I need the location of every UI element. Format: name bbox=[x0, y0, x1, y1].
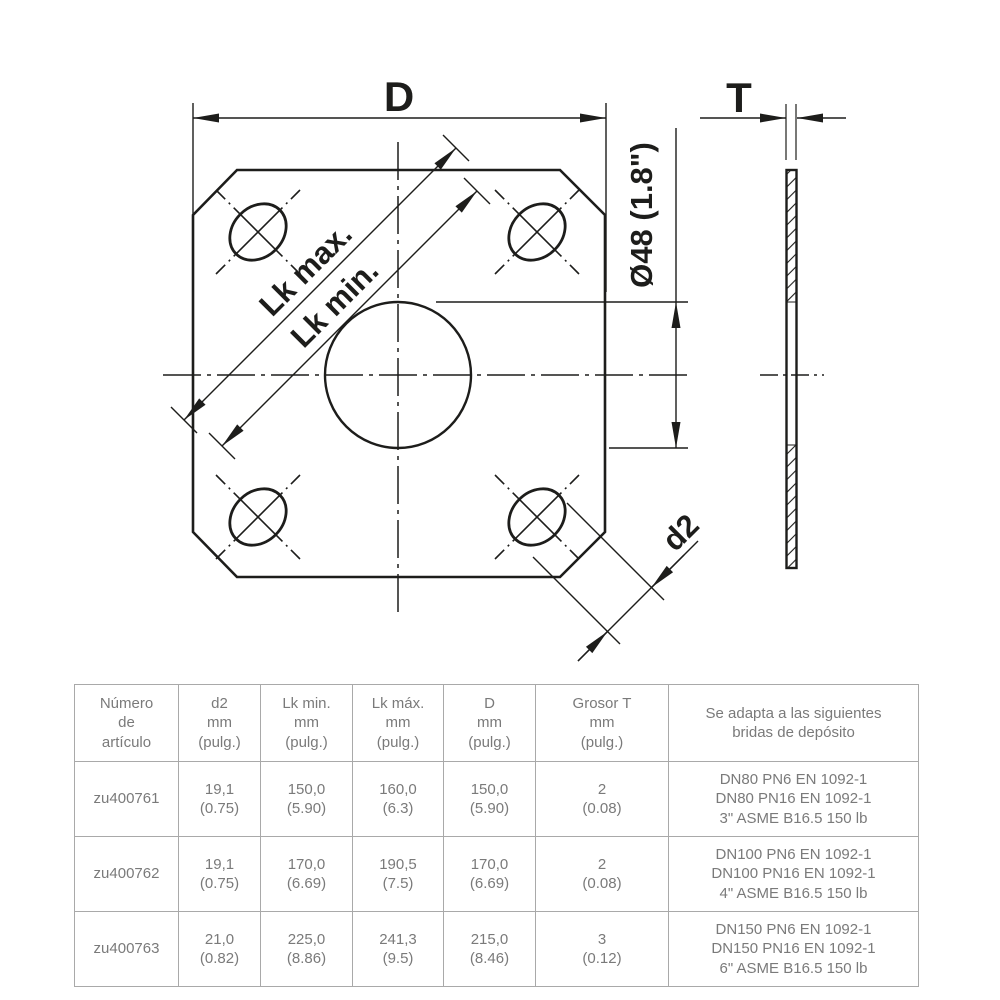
header-D: D mm (pulg.) bbox=[444, 685, 536, 762]
matching-flanges-cell: DN100 PN6 EN 1092-1 DN100 PN16 EN 1092-1… bbox=[669, 837, 919, 912]
table-row: zu400762 19,1 (0.75) 170,0 (6.69) 190,5 … bbox=[75, 837, 919, 912]
lk-max-cell: 160,0 (6.3) bbox=[353, 762, 444, 837]
label-T: T bbox=[726, 74, 752, 121]
table-row: zu400763 21,0 (0.82) 225,0 (8.86) 241,3 … bbox=[75, 912, 919, 987]
d2-cell: 19,1 (0.75) bbox=[179, 762, 261, 837]
dimension-Lk-max bbox=[171, 135, 469, 433]
label-D: D bbox=[384, 73, 414, 120]
plate-outline bbox=[193, 170, 605, 577]
label-d2: d2 bbox=[655, 507, 705, 557]
header-matching-flanges: Se adapta a las siguientes bridas de dep… bbox=[669, 685, 919, 762]
section-hatch-bottom bbox=[787, 445, 796, 567]
bolt-hole-bottom-left bbox=[216, 475, 300, 559]
header-lk-min: Lk min. mm (pulg.) bbox=[261, 685, 353, 762]
arrow-segment bbox=[578, 632, 608, 662]
D-cell: 150,0 (5.90) bbox=[444, 762, 536, 837]
thickness-cell: 2 (0.08) bbox=[536, 762, 669, 837]
header-d2: d2 mm (pulg.) bbox=[179, 685, 261, 762]
dimension-Lk-min bbox=[209, 178, 490, 459]
header-article-number: Número de artículo bbox=[75, 685, 179, 762]
d2-cell: 19,1 (0.75) bbox=[179, 837, 261, 912]
table-row: zu400761 19,1 (0.75) 150,0 (5.90) 160,0 … bbox=[75, 762, 919, 837]
plan-view bbox=[163, 103, 698, 661]
d2-cell: 21,0 (0.82) bbox=[179, 912, 261, 987]
technical-drawing: D T Lk max. Lk min. Ø48 (1.8") d2 bbox=[0, 0, 1000, 680]
table-header-row: Número de artículo d2 mm (pulg.) Lk min.… bbox=[75, 685, 919, 762]
dimension-D bbox=[193, 103, 606, 292]
dimension-T bbox=[700, 104, 846, 160]
specification-table: Número de artículo d2 mm (pulg.) Lk min.… bbox=[74, 684, 919, 987]
lk-max-cell: 241,3 (9.5) bbox=[353, 912, 444, 987]
dimension-line bbox=[184, 148, 456, 420]
lk-min-cell: 225,0 (8.86) bbox=[261, 912, 353, 987]
thickness-cell: 2 (0.08) bbox=[536, 837, 669, 912]
article-number-cell: zu400762 bbox=[75, 837, 179, 912]
bolt-hole-top-right bbox=[495, 190, 579, 274]
D-cell: 170,0 (6.69) bbox=[444, 837, 536, 912]
D-cell: 215,0 (8.46) bbox=[444, 912, 536, 987]
side-view bbox=[700, 104, 846, 568]
header-lk-max: Lk máx. mm (pulg.) bbox=[353, 685, 444, 762]
lk-min-cell: 150,0 (5.90) bbox=[261, 762, 353, 837]
lk-min-cell: 170,0 (6.69) bbox=[261, 837, 353, 912]
bolt-hole-top-left bbox=[216, 190, 300, 274]
thickness-cell: 3 (0.12) bbox=[536, 912, 669, 987]
tangent-extension-line bbox=[533, 557, 620, 644]
table-header: Número de artículo d2 mm (pulg.) Lk min.… bbox=[75, 685, 919, 762]
label-center-hole-diameter: Ø48 (1.8") bbox=[624, 142, 659, 288]
article-number-cell: zu400763 bbox=[75, 912, 179, 987]
header-thickness-T: Grosor T mm (pulg.) bbox=[536, 685, 669, 762]
bolt-hole-bottom-right bbox=[495, 475, 579, 559]
flange-gasket-datasheet: D T Lk max. Lk min. Ø48 (1.8") d2 Número… bbox=[0, 0, 1000, 1000]
arrow-segment bbox=[652, 555, 685, 588]
lk-max-cell: 190,5 (7.5) bbox=[353, 837, 444, 912]
tangent-extension-line bbox=[567, 503, 664, 600]
article-number-cell: zu400761 bbox=[75, 762, 179, 837]
section-hatch-top bbox=[787, 171, 796, 302]
matching-flanges-cell: DN150 PN6 EN 1092-1 DN150 PN16 EN 1092-1… bbox=[669, 912, 919, 987]
matching-flanges-cell: DN80 PN6 EN 1092-1 DN80 PN16 EN 1092-1 3… bbox=[669, 762, 919, 837]
